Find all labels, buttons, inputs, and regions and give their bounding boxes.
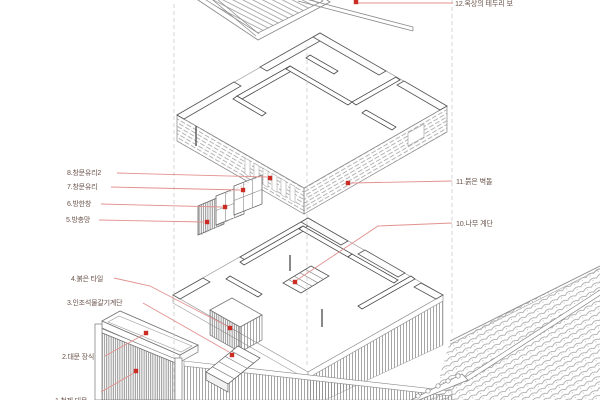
callout-label-4: 4.붉은 타일	[71, 274, 103, 283]
callout-label-8: 8.창문유리2	[67, 168, 101, 177]
window-panels-assembly	[198, 175, 262, 235]
architecture-exploded-axon-page: 12.옥상의 테두리 보 11.붉은 벽돌 10.나무 계단 8.창문유리2 7…	[0, 0, 600, 400]
callout-label-1: 1.철제 대문	[55, 396, 88, 400]
leader-7	[111, 187, 240, 190]
callout-label-3: 3.인조석물갈기계단	[67, 298, 123, 307]
callout-marker-7	[241, 188, 245, 192]
leader-11	[351, 181, 452, 183]
callout-marker-4	[228, 326, 232, 330]
callout-marker-3	[230, 353, 234, 357]
roof-slab-assembly	[186, 0, 413, 40]
leader-5	[99, 220, 204, 222]
callout-label-11: 11.붉은 벽돌	[456, 177, 493, 186]
callout-label-5: 5.방충망	[66, 215, 91, 224]
callout-marker-6	[223, 205, 227, 209]
callout-marker-8	[268, 176, 272, 180]
callout-label-10: 10.나무 계단	[456, 219, 493, 228]
callout-label-6: 6.방한창	[67, 199, 92, 208]
callout-marker-12	[354, 0, 358, 4]
callout-label-12: 12.옥상의 테두리 보	[455, 0, 513, 8]
callout-label-2: 2.대문 장식	[62, 352, 94, 361]
callout-marker-10	[293, 280, 297, 284]
callout-marker-11	[346, 181, 350, 185]
second-floor-assembly	[177, 33, 447, 214]
callout-label-7: 7.창문유리	[67, 182, 97, 191]
callout-marker-5	[205, 220, 209, 224]
callout-marker-2	[144, 331, 148, 335]
axonometric-diagram: 12.옥상의 테두리 보 11.붉은 벽돌 10.나무 계단 8.창문유리2 7…	[0, 0, 600, 400]
callout-marker-1	[134, 369, 138, 373]
window-panel-outer	[234, 175, 262, 215]
